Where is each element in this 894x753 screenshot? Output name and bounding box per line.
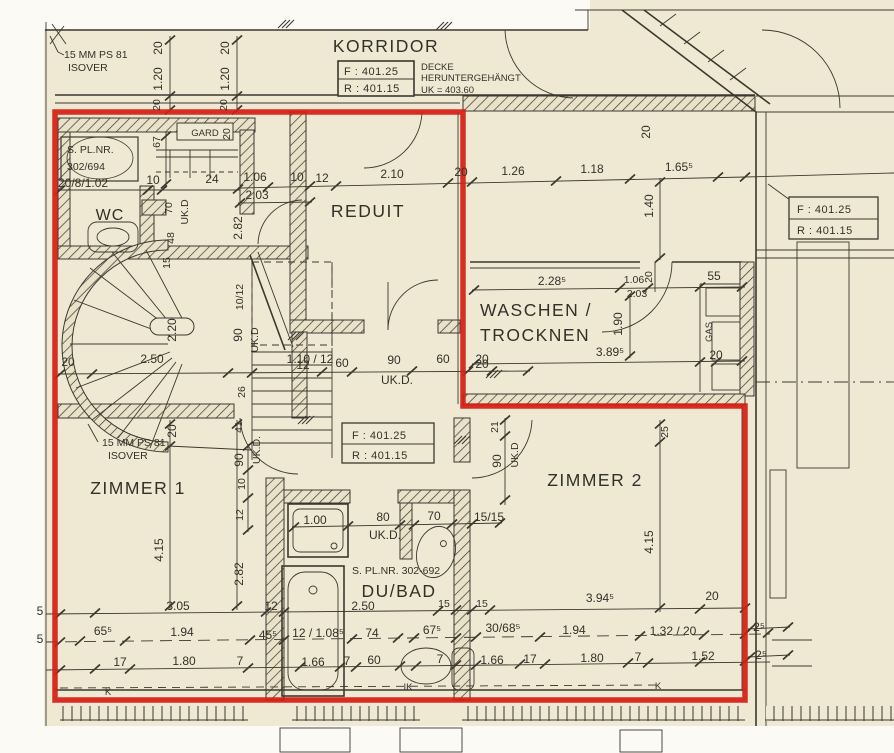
- dim: 1.94: [562, 623, 586, 637]
- room-label-reduit: REDUIT: [331, 201, 405, 221]
- axis-mark: K: [105, 687, 112, 698]
- dim: 1.10 / 12: [287, 352, 334, 366]
- dim: 24: [205, 172, 219, 186]
- dim: 25: [659, 426, 671, 438]
- dim: UK.D: [179, 199, 191, 225]
- dim: 1.52: [691, 649, 715, 663]
- dim: 17: [113, 655, 127, 669]
- dim: 1.40: [642, 194, 656, 218]
- korridor-level-f: F : 401.25: [344, 66, 399, 78]
- dim: 5: [37, 604, 44, 618]
- dim: 12: [234, 509, 246, 521]
- dim: UK.D: [509, 442, 521, 468]
- middle-level-f: F : 401.25: [352, 430, 407, 442]
- dim: 1.94: [170, 625, 194, 639]
- dim: 2.20: [165, 318, 179, 342]
- door-spec: 20/8/1.02: [58, 176, 108, 190]
- dim: 2.50: [140, 352, 164, 366]
- axis-mark: K: [655, 681, 662, 692]
- dim: 3.94⁵: [586, 591, 614, 605]
- dim: 2⁵: [753, 620, 765, 634]
- dim: 2⁵: [755, 648, 767, 662]
- dim: 12: [315, 171, 329, 185]
- dim: 90: [490, 454, 504, 468]
- dim: 60: [367, 653, 381, 667]
- dim: 1.20: [151, 67, 165, 91]
- dim: 1.06: [243, 170, 267, 184]
- dim: 4.15: [642, 530, 656, 554]
- dim: 1.00: [303, 513, 327, 527]
- dim: 65⁵: [94, 624, 112, 638]
- gas-label: GAS: [704, 322, 715, 342]
- korridor-level-r: R : 401.15: [344, 83, 400, 95]
- dim: 1.80: [580, 651, 604, 665]
- dim: UK.D.: [251, 436, 263, 464]
- dim: 30/68⁵: [485, 621, 520, 635]
- dim: 10: [236, 478, 248, 490]
- middle-level-r: R : 401.15: [352, 450, 408, 462]
- room-label-zimmer2: ZIMMER 2: [547, 470, 643, 490]
- dim: 17: [523, 652, 537, 666]
- dim: 15/15: [474, 510, 504, 524]
- dim: 20: [709, 348, 723, 362]
- plan-number-bad: S. PL.NR. 302-692: [352, 565, 440, 577]
- dim: 20: [454, 165, 468, 179]
- dim: 41: [233, 421, 245, 433]
- dim: 1.32 / 20: [650, 624, 697, 638]
- plan-number-line2: 302/694: [67, 161, 105, 173]
- dim: 20: [639, 125, 653, 139]
- room-label-gard: GARD: [191, 128, 219, 139]
- dim: 1.26: [501, 164, 525, 178]
- dim: 20: [705, 589, 719, 603]
- right-level-f: F : 401.25: [797, 204, 852, 216]
- level-box-middle: F : 401.25 R : 401.15: [342, 423, 434, 463]
- dim: 15: [161, 257, 173, 269]
- dim: 1.65⁵: [665, 160, 693, 174]
- dim: 2.82: [232, 562, 246, 586]
- dim: UK.D.: [381, 373, 413, 387]
- right-level-r: R : 401.15: [797, 225, 853, 237]
- dim: 2.50: [351, 599, 375, 613]
- dim: 3.89⁵: [596, 345, 624, 359]
- dim: 67⁵: [423, 623, 441, 637]
- dim: 90: [232, 453, 246, 467]
- axis-mark: IK: [404, 682, 414, 693]
- dim: 90: [387, 353, 401, 367]
- ceiling-note-1: DECKE: [421, 62, 454, 73]
- dim: 12: [296, 358, 310, 372]
- dim: 12 / 1.08⁵: [292, 626, 344, 640]
- dim: 20: [643, 271, 655, 283]
- dim: 2.28⁵: [538, 274, 566, 288]
- dim: 20: [151, 99, 163, 111]
- room-label-wc: WC: [96, 207, 125, 224]
- dim: 15: [476, 598, 488, 610]
- dim: 7: [237, 654, 244, 668]
- dim: 2.10: [380, 167, 404, 181]
- dim: 10: [290, 170, 304, 184]
- dim: 70: [163, 202, 175, 214]
- dim: 10: [146, 173, 160, 187]
- dim: 20: [165, 424, 179, 438]
- ceiling-note-3: UK = 403.60: [421, 85, 474, 96]
- dim: 5: [37, 632, 44, 646]
- dim: 10/12: [234, 284, 246, 310]
- dim: 1.66: [301, 655, 325, 669]
- dim: 1.18: [580, 162, 604, 176]
- dim: 60: [335, 356, 349, 370]
- dim: UK.D: [249, 327, 261, 353]
- ceiling-note-2: HERUNTERGEHÄNGT: [421, 73, 521, 84]
- plan-number-line1: S. PL.NR.: [67, 144, 114, 156]
- dim: 67: [151, 136, 163, 148]
- dim: 74: [365, 626, 379, 640]
- dim: 1.06: [624, 274, 645, 286]
- dim: 1.80: [172, 654, 196, 668]
- insulation-note-z1-1: 15 MM PS 81: [102, 437, 166, 449]
- dim: 90: [231, 328, 245, 342]
- dim: 48: [165, 232, 177, 244]
- dim: 1.20: [218, 67, 232, 91]
- dim: 70: [427, 509, 441, 523]
- insulation-note-z1-2: ISOVER: [108, 450, 148, 462]
- dim: 2.03: [627, 288, 648, 300]
- dim: 45⁵: [259, 628, 277, 642]
- dim: 3.05: [166, 599, 190, 613]
- dim: 60: [436, 352, 450, 366]
- room-label-zimmer1: ZIMMER 1: [90, 478, 186, 498]
- dim: UK.D.: [369, 528, 401, 542]
- dim: 7: [635, 650, 642, 664]
- floor-plan-drawing: F : 401.25 R : 401.15 F : 401.25 R : 401…: [0, 0, 894, 753]
- dim: 7: [344, 654, 351, 668]
- dim: 2.03: [245, 188, 269, 202]
- dim: 1.90: [611, 312, 625, 336]
- dim: 2.82: [231, 216, 245, 240]
- room-label-waschen: WASCHEN /: [480, 300, 592, 320]
- room-label-dubad: DU/BAD: [361, 581, 436, 601]
- dim: 12: [264, 599, 278, 613]
- dim: 20: [151, 41, 165, 55]
- dim: 20: [221, 128, 233, 140]
- dim: 15: [438, 598, 450, 610]
- dim: 26: [236, 386, 248, 398]
- dim: 1.66: [480, 653, 504, 667]
- insulation-note-top-1: 15 MM PS 81: [64, 49, 128, 61]
- level-box-korridor: F : 401.25 R : 401.15: [338, 61, 414, 96]
- dim: 20: [475, 357, 489, 371]
- room-label-korridor: KORRIDOR: [333, 36, 439, 56]
- insulation-note-top-2: ISOVER: [68, 62, 108, 74]
- dim: 55: [707, 269, 721, 283]
- dim: 80: [376, 510, 390, 524]
- dim: 20: [218, 41, 232, 55]
- dim: 20: [218, 99, 230, 111]
- dim: 21: [489, 421, 501, 433]
- level-box-right: F : 401.25 R : 401.15: [789, 197, 878, 239]
- dim: 20: [61, 355, 75, 369]
- floor-plan-scan: F : 401.25 R : 401.15 F : 401.25 R : 401…: [0, 0, 894, 753]
- dim: 4.15: [152, 538, 166, 562]
- room-label-trocknen: TROCKNEN: [480, 325, 590, 345]
- dim: 7: [437, 652, 444, 666]
